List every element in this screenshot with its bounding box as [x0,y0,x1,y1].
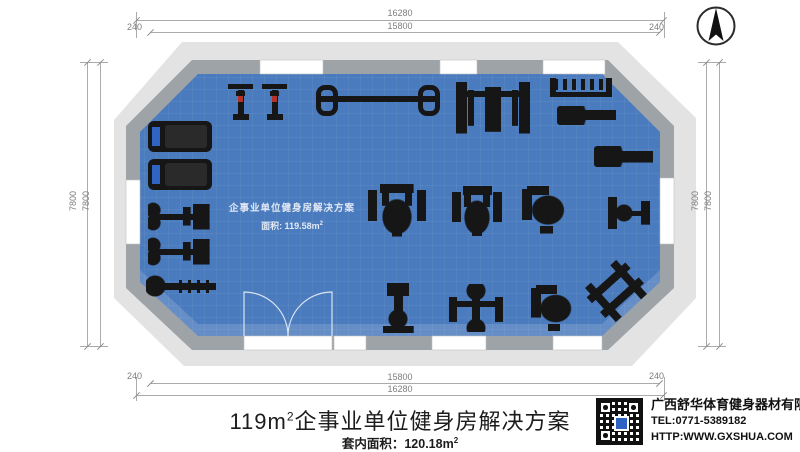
subtitle-text: 套内面积：120.18m [342,437,454,451]
dimension-label: 7800 [68,181,78,221]
window [553,336,602,350]
company-text: 广西舒华体育健身器材有限公司 TEL:0771-5389182 HTTP:WWW… [651,397,800,445]
title-sup: 2 [287,410,295,424]
dimension-line [719,62,720,346]
dimension-label: 240 [127,371,142,381]
dimension-line [150,32,660,33]
title-main: 企事业单位健身房解决方案 [295,409,571,434]
window [660,178,674,244]
dimension-line [136,395,664,396]
window [440,60,477,74]
window [260,60,323,74]
dimension-label: 7800 [703,181,713,221]
dimension-label: 15800 [370,372,430,382]
dimension-label: 240 [127,22,142,32]
dimension-label: 16280 [370,384,430,394]
title-prefix: 119m [229,409,286,434]
north-arrow-icon [698,8,735,45]
dimension-label: 7800 [81,181,91,221]
floor [140,74,660,336]
window [543,60,605,74]
dimension-extension [698,346,726,347]
window [334,336,366,350]
company-name: 广西舒华体育健身器材有限公司 [651,397,800,413]
window [432,336,486,350]
dimension-line [100,62,101,346]
company-phone: TEL:0771-5389182 [651,413,800,429]
qr-finder-icon [627,401,640,414]
dimension-extension [80,346,108,347]
dimension-extension [664,12,665,38]
qr-finder-icon [599,429,612,442]
dimension-label: 16280 [370,8,430,18]
dimension-extension [698,62,726,63]
qr-center-logo [614,416,629,431]
window [126,180,140,244]
dimension-label: 7800 [690,181,700,221]
dimension-label: 15800 [370,21,430,31]
company-website: HTTP:WWW.GXSHUA.COM [651,429,800,445]
qr-code [596,398,643,445]
qr-finder-icon [599,401,612,414]
subtitle-sup: 2 [454,436,458,445]
dimension-extension [80,62,108,63]
gym-floorplan-page: { "dimensions": { "top": {"outer": "1628… [0,0,800,450]
